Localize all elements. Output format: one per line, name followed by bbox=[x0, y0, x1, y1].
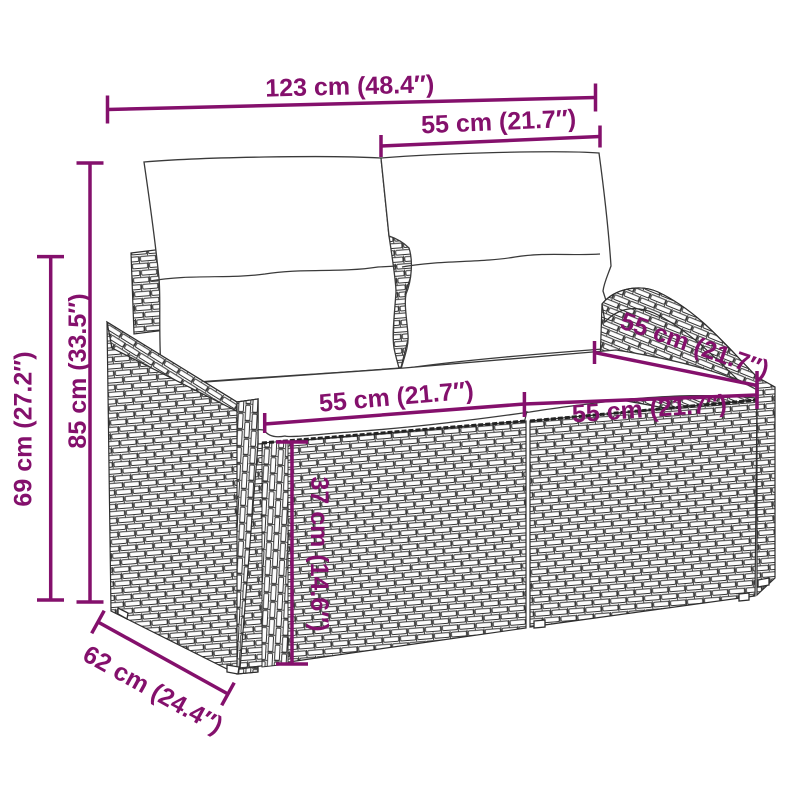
svg-text:85 cm (33.5″): 85 cm (33.5″) bbox=[64, 293, 92, 448]
svg-text:123 cm (48.4″): 123 cm (48.4″) bbox=[265, 70, 435, 102]
svg-text:37 cm (14.6″): 37 cm (14.6″) bbox=[305, 476, 333, 631]
svg-text:69 cm (27.2″): 69 cm (27.2″) bbox=[10, 351, 38, 506]
